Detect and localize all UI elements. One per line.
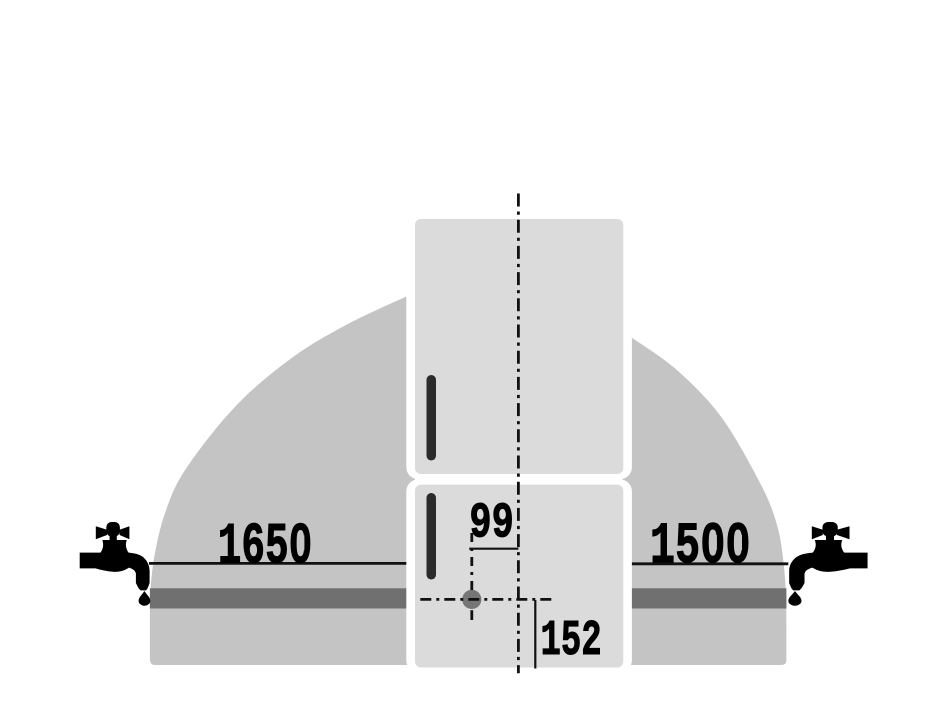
svg-text:99: 99 — [469, 496, 513, 553]
svg-text:152: 152 — [541, 612, 602, 669]
